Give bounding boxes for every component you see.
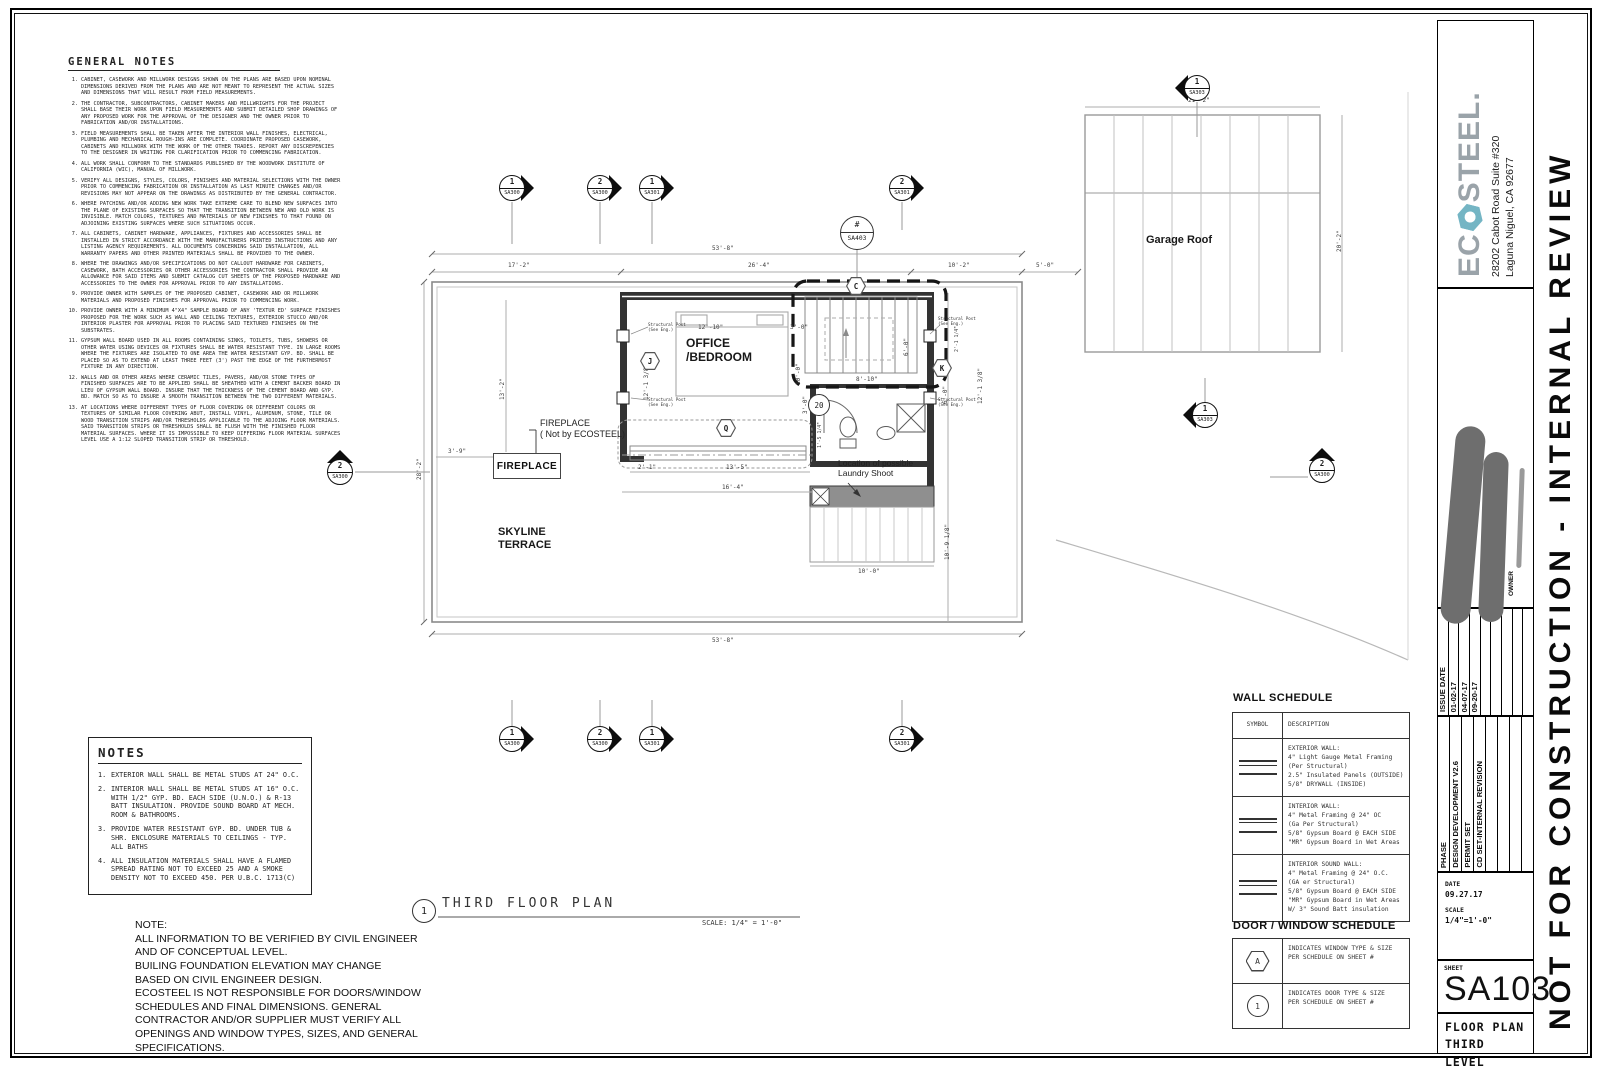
door-window-schedule-title: DOOR / WINDOW SCHEDULE <box>1233 920 1396 932</box>
general-notes-list: 1. CABINET, CASEWORK AND MILLWORK DESIGN… <box>68 77 342 444</box>
section-marker: 2SA300 <box>587 175 613 201</box>
sheet-number: SA103 <box>1444 972 1527 1008</box>
dim-stair-height: 6'-0" <box>903 338 910 356</box>
dim-stair-offset: 3'-0" <box>790 324 808 331</box>
door-window-schedule-table: A INDICATES WINDOW TYPE & SIZE PER SCHED… <box>1232 938 1410 1029</box>
notes-box-title: NOTES <box>98 745 302 764</box>
notes-box-list: 1. EXTERIOR WALL SHALL BE METAL STUDS AT… <box>98 771 302 883</box>
dim-bath-small: 1'-5 1/4" <box>818 422 823 448</box>
wall-description: INTERIOR WALL: 4" Metal Framing @ 24" OC… <box>1283 797 1409 854</box>
stairs <box>793 281 946 387</box>
bath-fixtures <box>840 404 925 448</box>
drawing-title-line1: FLOOR PLAN <box>1445 1019 1526 1036</box>
wall-description: INTERIOR SOUND WALL: 4" Metal Framing @ … <box>1283 855 1409 921</box>
general-note-item: 4. ALL WORK SHALL CONFORM TO THE STANDAR… <box>68 161 342 174</box>
structural-posts <box>617 330 936 404</box>
section-marker: 1SA301 <box>639 726 665 752</box>
wall-schedule-title: WALL SCHEDULE <box>1233 692 1333 704</box>
dim-right-6: 6'-0" <box>942 386 949 404</box>
dim-left-inner: 13'-2" <box>499 378 506 400</box>
phase-entry: CD SET-INTERNAL REVISION <box>1475 761 1484 871</box>
door-tag-row: 1 INDICATES DOOR TYPE & SIZE PER SCHEDUL… <box>1233 984 1409 1028</box>
window-tag-icon: A <box>1246 951 1270 972</box>
wall-schedule-row: EXTERIOR WALL: 4" Light Gauge Metal Fram… <box>1233 739 1409 797</box>
structural-post-note: Structural Post(See Eng.) <box>938 316 976 326</box>
room-label-skyline-terrace: SKYLINETERRACE <box>498 526 551 552</box>
room-label-office: OFFICE/BEDROOM <box>686 336 752 365</box>
issue-date-header: ISSUE DATE <box>1438 667 1447 715</box>
scale-value: 1/4"=1'-0" <box>1445 916 1526 925</box>
general-note-item: 8. WHERE THE DRAWINGS AND/OR SPECIFICATI… <box>68 261 342 287</box>
verification-note: NOTE:ALL INFORMATION TO BE VERIFIED BY C… <box>135 919 465 1055</box>
dim-left-height: 28'-2" <box>416 458 423 480</box>
phase-entry: PERMIT SET <box>1463 822 1472 871</box>
window-tag-q: Q <box>716 419 736 437</box>
door-tag-description: INDICATES DOOR TYPE & SIZE PER SCHEDULE … <box>1283 984 1409 1028</box>
notes-box-item: 1. EXTERIOR WALL SHALL BE METAL STUDS AT… <box>98 771 302 780</box>
dim-top-total: 53'-8" <box>712 245 734 252</box>
section-marker: 1SA303 <box>1184 75 1210 101</box>
callout-leaders <box>529 430 859 495</box>
dim-room-height-right: 12'-1 3/8" <box>977 368 984 404</box>
section-marker: 2SA300 <box>1309 457 1335 483</box>
ecosteel-logo: EC STEEL. <box>1453 91 1487 277</box>
section-marker: 2SA300 <box>587 726 613 752</box>
notes-box: NOTES 1. EXTERIOR WALL SHALL BE METAL ST… <box>88 737 312 895</box>
phase-entry: DESIGN DEVELOPMENT V2.6 <box>1451 761 1460 871</box>
owner-label: OWNER <box>1508 552 1515 596</box>
dim-right-lower: 10'-9 1/8" <box>944 524 951 560</box>
date-value: 09.27.17 <box>1445 890 1526 899</box>
drawing-title-box: FLOOR PLAN THIRD LEVEL <box>1437 1013 1534 1054</box>
dim-bottom-total: 53'-8" <box>712 637 734 644</box>
marker-stems <box>355 102 1308 726</box>
door-tag-icon: 1 <box>1247 995 1269 1017</box>
scale-label: SCALE <box>1445 907 1526 914</box>
door-tag-20: 20 <box>808 394 830 416</box>
window-tag-k: K <box>932 359 952 377</box>
structural-post-note: Structural Post(See Eng.) <box>648 322 686 332</box>
general-note-item: 11. GYPSUM WALL BOARD USED IN ALL ROOMS … <box>68 338 342 371</box>
company-address: 28202 Cabot Road Suite #320 Laguna Nigue… <box>1490 136 1517 277</box>
section-marker: 2SA301 <box>889 175 915 201</box>
laundry-chute-callout: Location of possibleLaundry Shoot <box>838 458 913 478</box>
hex-nut-icon <box>1454 201 1486 235</box>
plan-title: THIRD FLOOR PLAN <box>442 896 615 911</box>
dim-top-seg1: 17'-2" <box>508 262 530 269</box>
driveway-curve <box>1056 540 1408 660</box>
dim-bay-total: 16'-4" <box>722 484 744 491</box>
date-scale-box: DATE 09.27.17 SCALE 1/4"=1'-0" <box>1437 872 1534 960</box>
issue-date: 04-07-17 <box>1460 682 1469 715</box>
general-note-item: 12. WALLS AND OR OTHER AREAS WHERE CERAM… <box>68 375 342 401</box>
section-marker: 1SA303 <box>1192 402 1218 428</box>
section-marker: 2SA300 <box>327 459 353 485</box>
plan-title-number: 1 <box>412 899 436 923</box>
window-tag-c: C <box>846 277 866 295</box>
titleblock-logo-box: EC STEEL. 28202 Cabot Road Suite #320 La… <box>1437 20 1534 288</box>
general-note-item: 5. VERIFY ALL DESIGNS, STYLES, COLORS, F… <box>68 178 342 198</box>
general-note-item: 7. ALL CABINETS, CABINET HARDWARE, APPLI… <box>68 231 342 257</box>
general-note-item: 2. THE CONTRACTOR, SUBCONTRACTORS, CABIN… <box>68 101 342 127</box>
window-tag-description: INDICATES WINDOW TYPE & SIZE PER SCHEDUL… <box>1283 939 1409 983</box>
drawing-sheet: GENERAL NOTES 1. CABINET, CASEWORK AND M… <box>0 0 1600 1067</box>
dimension-ticks <box>421 251 1081 637</box>
wall-symbol-icon <box>1239 880 1277 895</box>
window-tag-j: J <box>640 352 660 370</box>
phase-table: PHASE DESIGN DEVELOPMENT V2.6 PERMIT SET… <box>1437 716 1534 872</box>
window-tag-row: A INDICATES WINDOW TYPE & SIZE PER SCHED… <box>1233 939 1409 984</box>
wall-schedule-row: INTERIOR WALL: 4" Metal Framing @ 24" OC… <box>1233 797 1409 855</box>
dim-garage-height: 20'-2" <box>1336 230 1343 252</box>
sheet-number-box: SHEET SA103 <box>1437 960 1534 1013</box>
phase-header: PHASE <box>1439 842 1448 871</box>
fireplace-box-label: FIREPLACE <box>493 453 561 479</box>
general-note-item: 1. CABINET, CASEWORK AND MILLWORK DESIGN… <box>68 77 342 97</box>
detail-callout-sa403: # SA403 <box>840 216 874 250</box>
general-note-item: 10. PROVIDE OWNER WITH A MINIMUM 4"X4" S… <box>68 308 342 334</box>
dim-stair-width: 8'-10" <box>856 376 878 383</box>
dim-room-width: 12'-10" <box>698 324 723 331</box>
general-note-item: 6. WHERE PATCHING AND/OR ADDING NEW WORK… <box>68 201 342 227</box>
section-marker: 1SA301 <box>639 175 665 201</box>
general-note-item: 3. FIELD MEASUREMENTS SHALL BE TAKEN AFT… <box>68 131 342 157</box>
col-description: DESCRIPTION <box>1283 713 1409 738</box>
notes-box-item: 4. ALL INSULATION MATERIALS SHALL HAVE A… <box>98 857 302 883</box>
notes-box-item: 2. INTERIOR WALL SHALL BE METAL STUDS AT… <box>98 785 302 820</box>
section-marker: 2SA301 <box>889 726 915 752</box>
fireplace-callout: FIREPLACE( Not by ECOSTEEL) <box>540 418 625 440</box>
issue-date: 09-20-17 <box>1470 682 1479 715</box>
dim-corner-small: 2'-1 1/4" <box>955 326 960 352</box>
drawing-title-line2: THIRD LEVEL <box>1445 1036 1526 1067</box>
garage-roof-label: Garage Roof <box>1146 234 1212 247</box>
wall-schedule-header: SYMBOL DESCRIPTION <box>1233 713 1409 739</box>
general-note-item: 13. AT LOCATIONS WHERE DIFFERENT TYPES O… <box>68 405 342 444</box>
section-marker: 1SA300 <box>499 175 525 201</box>
dim-top-seg2: 26'-4" <box>748 262 770 269</box>
general-notes-title: GENERAL NOTES <box>68 56 280 71</box>
date-label: DATE <box>1445 881 1526 888</box>
dim-fireplace-offset: 3'-9" <box>448 448 466 455</box>
window-bay <box>618 420 812 468</box>
notes-box-item: 3. PROVIDE WATER RESISTANT GYP. BD. UNDE… <box>98 825 302 851</box>
dimension-lines <box>424 107 1342 634</box>
dim-top-seg4: 5'-0" <box>1036 262 1054 269</box>
wall-symbol-icon <box>1239 760 1277 775</box>
dim-deck-width: 10'-0" <box>858 568 880 575</box>
issue-date: 01-02-17 <box>1449 682 1458 715</box>
general-notes: GENERAL NOTES 1. CABINET, CASEWORK AND M… <box>68 56 342 448</box>
wall-description: EXTERIOR WALL: 4" Light Gauge Metal Fram… <box>1283 739 1409 796</box>
wall-schedule-table: SYMBOL DESCRIPTION EXTERIOR WALL: 4" Lig… <box>1232 712 1410 922</box>
structural-post-note: Structural Post(See Eng.) <box>648 397 686 407</box>
section-marker: 1SA300 <box>499 726 525 752</box>
dim-bay-offset: 2'-1" <box>638 464 656 471</box>
wall-schedule-row: INTERIOR SOUND WALL: 4" Metal Framing @ … <box>1233 855 1409 921</box>
plan-scale: SCALE: 1/4" = 1'-0" <box>702 919 782 927</box>
issue-date-table: ISSUE DATE 01-02-17 04-07-17 09-20-17 <box>1437 608 1534 716</box>
general-note-item: 9. PROVIDE OWNER WITH SAMPLES OF THE PRO… <box>68 291 342 304</box>
dim-bay-width: 13'-5" <box>726 464 748 471</box>
laundry-chute <box>810 486 934 507</box>
terrace-outline <box>432 282 1022 622</box>
lower-deck <box>810 507 934 562</box>
dim-top-seg3: 10'-2" <box>948 262 970 269</box>
dim-interior-10: 10'-0" <box>795 363 802 385</box>
not-for-construction-watermark: NOT FOR CONSTRUCTION - INTERNAL REVIEW <box>1534 13 1588 1054</box>
col-symbol: SYMBOL <box>1233 713 1283 738</box>
wall-symbol-icon <box>1239 818 1277 833</box>
wall-schedule-rows: EXTERIOR WALL: 4" Light Gauge Metal Fram… <box>1233 739 1409 921</box>
